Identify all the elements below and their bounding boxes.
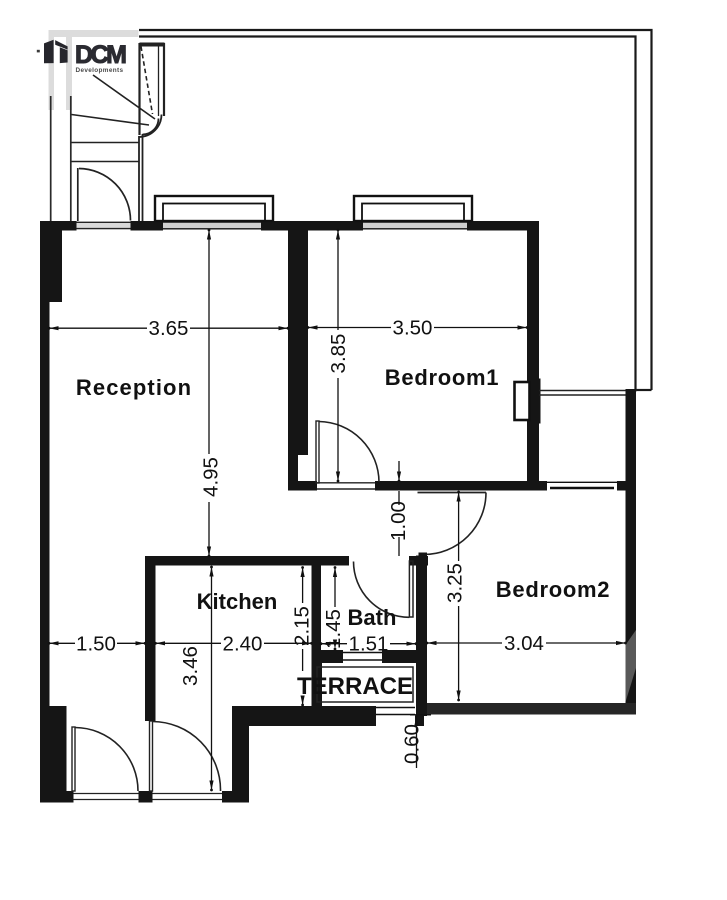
svg-text:1.51: 1.51 [349,633,389,656]
svg-text:2.40: 2.40 [223,632,263,655]
svg-text:4.95: 4.95 [200,457,223,497]
svg-text:0.60: 0.60 [401,724,424,764]
svg-text:3.04: 3.04 [504,632,544,655]
svg-text:Kitchen: Kitchen [197,589,278,614]
svg-text:Developments: Developments [76,67,124,74]
svg-text:Reception: Reception [76,375,192,400]
svg-text:Bedroom2: Bedroom2 [496,577,610,602]
svg-text:3.50: 3.50 [393,316,433,339]
svg-text:Bath: Bath [348,605,397,630]
svg-text:TERRACE: TERRACE [297,673,413,700]
svg-text:2.15: 2.15 [291,606,314,646]
svg-text:3.46: 3.46 [179,646,202,686]
svg-text:DCM: DCM [75,41,126,69]
svg-text:1.50: 1.50 [76,632,116,655]
svg-text:3.25: 3.25 [444,563,467,603]
svg-text:1.00: 1.00 [387,501,410,541]
svg-text:3.65: 3.65 [149,317,189,340]
svg-text:3.85: 3.85 [327,334,350,374]
svg-text:1.45: 1.45 [322,609,345,649]
svg-text:Bedroom1: Bedroom1 [385,365,499,390]
